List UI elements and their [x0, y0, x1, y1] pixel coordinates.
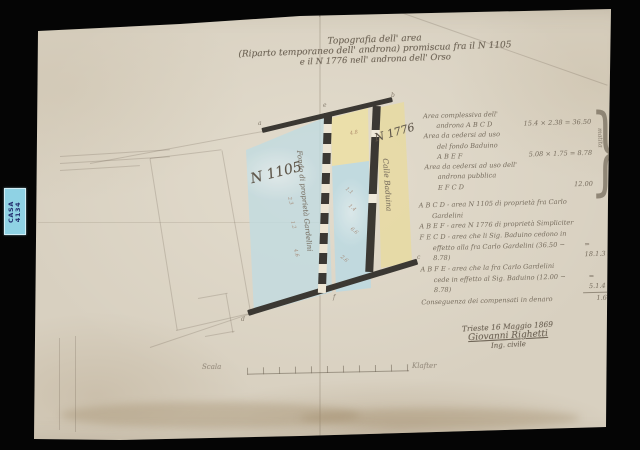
signature-block: Trieste 16 Maggio 1869 Giovanni Righetti… [437, 318, 578, 352]
calc-value: 5.08 × 1.75 = 8.78 [523, 148, 593, 160]
screenshot-root: CASA 4134 + Topografia dell' area (Ripar… [0, 0, 640, 450]
pencil-line-bottom-left-2 [75, 336, 76, 432]
legend-block: A B C D - area N 1105 di proprietà fra C… [419, 196, 614, 309]
building-outline-left [150, 158, 178, 330]
annex-outline-3 [205, 331, 235, 337]
corner-label-a: a [258, 120, 262, 127]
scale-bar [247, 364, 409, 374]
scale-left-label: Scala [202, 363, 221, 371]
legend-text: cede in effetto al Sig. Baduino (12.00 −… [421, 271, 584, 298]
scale-right-label: Klafter [412, 362, 437, 370]
corner-label-e: e [323, 102, 327, 109]
annex-outline-1 [198, 293, 228, 299]
legend-value: = 5.1.4 [583, 270, 614, 293]
legend-value: = 18.1.3 [578, 238, 612, 260]
stain-bottom-right [300, 408, 580, 428]
title-block: Topografia dell' area (Riparto temporane… [205, 29, 546, 71]
calc-value: 15.4 × 2.38 = 36.50 [518, 117, 592, 129]
legend-text: Conseguenza dei compensati in denaro [421, 294, 553, 308]
brace-side-note: matita [596, 128, 604, 148]
area-calculations-block: Area complessiva dell' androna A B C D15… [423, 107, 593, 193]
street-hatch-line [60, 165, 140, 171]
archive-label: CASA 4134 [4, 188, 26, 235]
building-outline-right [222, 150, 252, 313]
pencil-line-bottom-left-1 [59, 338, 60, 430]
cross-mark: + [316, 10, 324, 20]
corner-label-d: d [241, 316, 245, 323]
corner-label-f: f [333, 294, 335, 301]
archive-label-text: CASA 4134 [4, 189, 26, 235]
legend-text: effetto alla fra Carlo Gardelini (36.50 … [420, 239, 579, 264]
archive-label-line2: 4134 [15, 202, 22, 223]
calc-value: 12.00 [568, 178, 593, 189]
corner-label-b: b [391, 92, 395, 99]
building-outline-bottom [176, 313, 248, 331]
boundary-extension-top [90, 131, 262, 164]
paper-sheet: + Topografia dell' area (Riparto tempora… [0, 0, 640, 450]
annex-outline-2 [226, 293, 234, 333]
legend-value: 1.6.8 [590, 293, 613, 304]
calc-text: E F C D [425, 182, 464, 193]
calculations-brace: } [590, 106, 621, 194]
